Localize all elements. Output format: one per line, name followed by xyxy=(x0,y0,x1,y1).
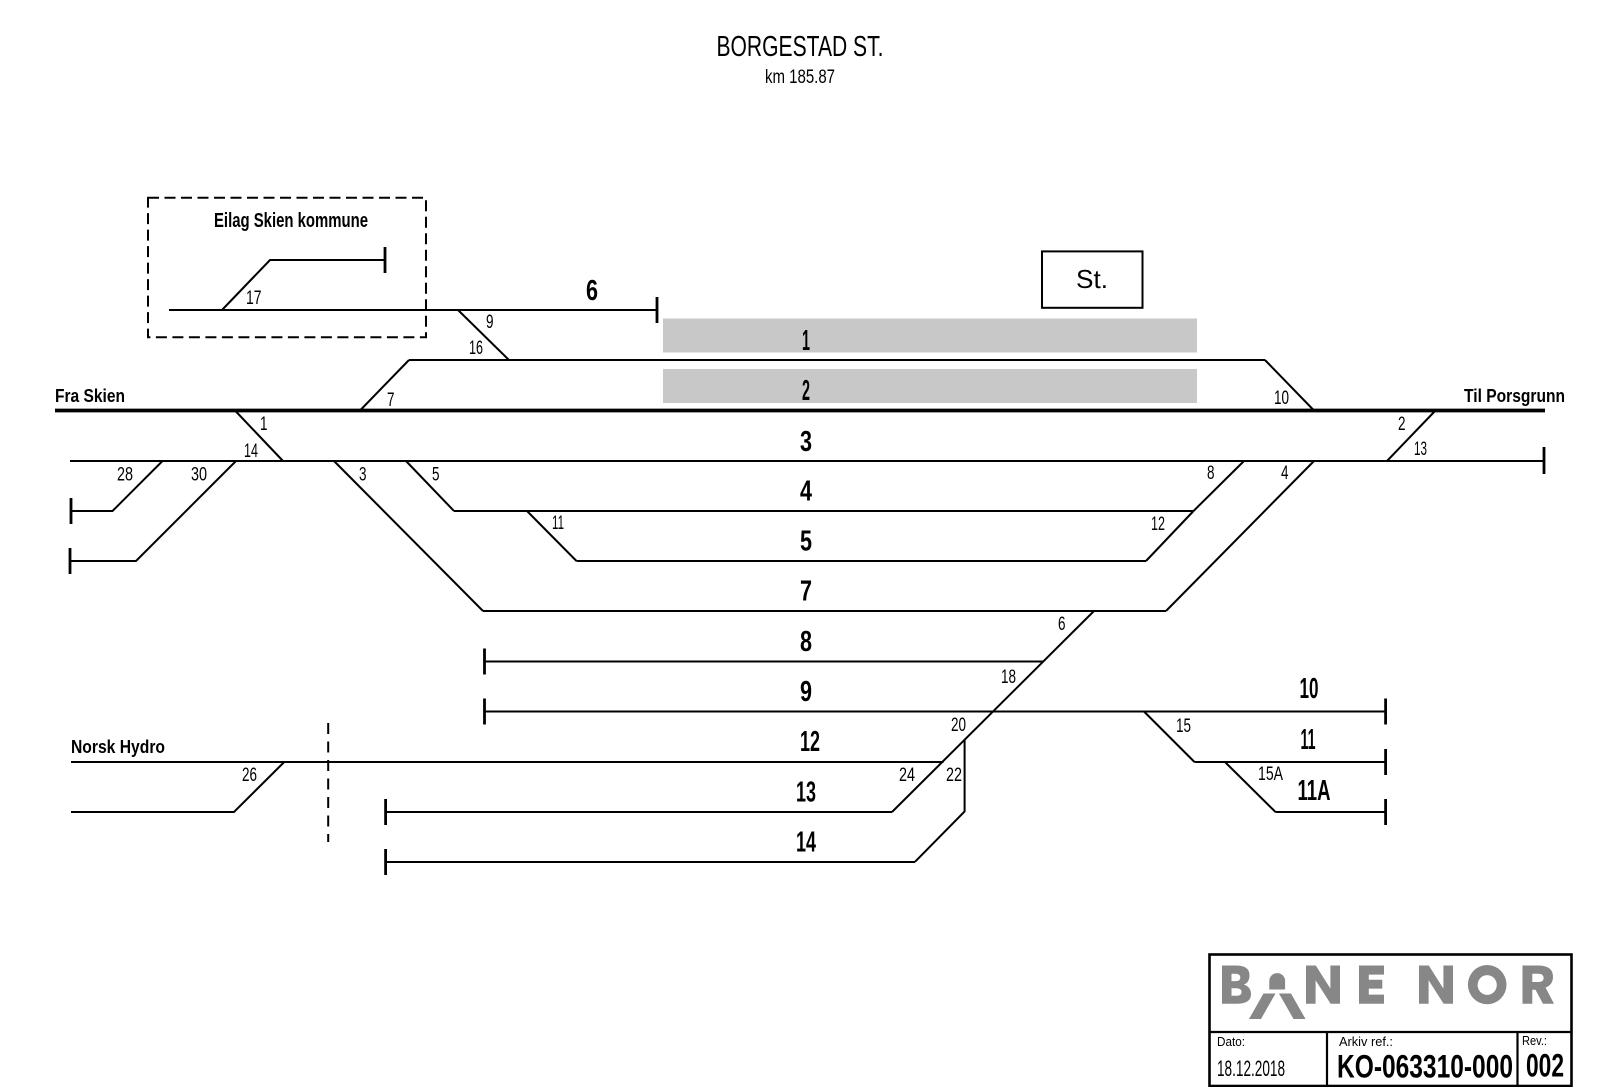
svg-text:4: 4 xyxy=(800,476,812,508)
svg-text:26: 26 xyxy=(242,765,257,786)
svg-text:BORGESTAD ST.: BORGESTAD ST. xyxy=(717,31,884,63)
svg-text:km 185.87: km 185.87 xyxy=(765,67,835,88)
svg-text:002: 002 xyxy=(1526,1048,1564,1084)
svg-text:Til Porsgrunn: Til Porsgrunn xyxy=(1464,385,1565,406)
svg-text:2: 2 xyxy=(802,375,810,407)
svg-text:14: 14 xyxy=(796,827,816,859)
svg-text:17: 17 xyxy=(246,288,262,309)
svg-text:11: 11 xyxy=(552,513,564,534)
svg-text:10: 10 xyxy=(1274,388,1289,409)
svg-text:8: 8 xyxy=(800,626,812,658)
svg-text:28: 28 xyxy=(117,465,133,486)
svg-text:18: 18 xyxy=(1001,667,1016,688)
svg-text:Norsk Hydro: Norsk Hydro xyxy=(71,736,165,757)
svg-text:1: 1 xyxy=(802,325,810,357)
svg-text:14: 14 xyxy=(244,441,258,462)
svg-text:10: 10 xyxy=(1300,673,1319,705)
svg-text:1: 1 xyxy=(260,414,268,435)
svg-text:7: 7 xyxy=(800,576,812,608)
svg-text:Dato:: Dato: xyxy=(1217,1034,1245,1049)
svg-text:6: 6 xyxy=(1058,614,1066,635)
svg-text:22: 22 xyxy=(946,765,962,786)
svg-text:9: 9 xyxy=(800,676,812,708)
svg-text:6: 6 xyxy=(586,275,598,307)
svg-text:3: 3 xyxy=(359,465,367,486)
svg-text:16: 16 xyxy=(469,338,483,359)
svg-text:9: 9 xyxy=(486,312,494,333)
svg-text:Eilag Skien kommune: Eilag Skien kommune xyxy=(214,210,368,232)
svg-text:24: 24 xyxy=(899,765,915,786)
svg-text:4: 4 xyxy=(1281,463,1289,484)
svg-text:Arkiv ref.:: Arkiv ref.: xyxy=(1339,1034,1393,1049)
svg-text:Fra Skien: Fra Skien xyxy=(55,385,125,406)
svg-text:15: 15 xyxy=(1176,716,1191,737)
svg-text:13: 13 xyxy=(1414,439,1427,460)
svg-text:12: 12 xyxy=(1151,514,1165,535)
svg-text:KO-063310-000: KO-063310-000 xyxy=(1337,1049,1513,1085)
svg-text:11A: 11A xyxy=(1298,775,1331,807)
svg-text:12: 12 xyxy=(800,726,820,758)
svg-text:20: 20 xyxy=(951,715,966,736)
svg-text:St.: St. xyxy=(1076,264,1108,294)
svg-text:5: 5 xyxy=(432,465,440,486)
svg-text:15A: 15A xyxy=(1258,764,1283,785)
svg-text:11: 11 xyxy=(1301,724,1316,756)
svg-text:Rev.:: Rev.: xyxy=(1522,1033,1547,1048)
svg-text:2: 2 xyxy=(1398,414,1406,435)
svg-text:30: 30 xyxy=(191,465,207,486)
svg-text:3: 3 xyxy=(800,426,812,458)
svg-text:8: 8 xyxy=(1207,463,1215,484)
svg-text:13: 13 xyxy=(796,777,816,809)
svg-text:18.12.2018: 18.12.2018 xyxy=(1217,1056,1285,1081)
svg-text:5: 5 xyxy=(800,526,812,558)
svg-text:7: 7 xyxy=(387,390,395,411)
